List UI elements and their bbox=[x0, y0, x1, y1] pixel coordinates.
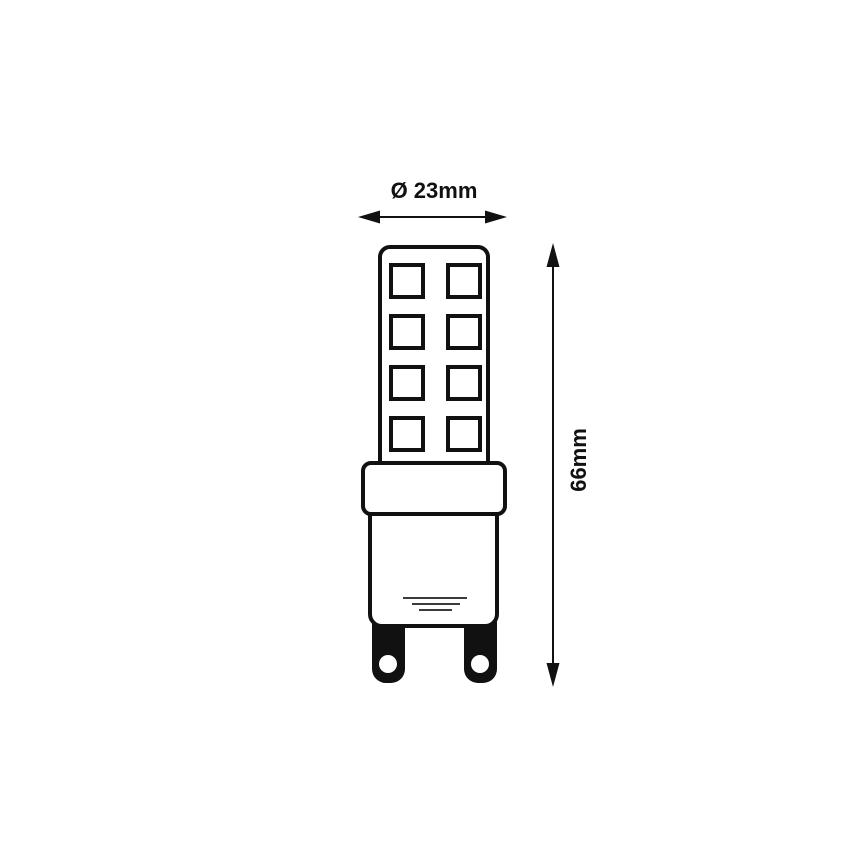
arrowhead-right-icon bbox=[485, 211, 507, 224]
bulb-body bbox=[378, 245, 490, 469]
pin-right bbox=[464, 620, 497, 683]
led-chip bbox=[446, 314, 482, 350]
pin-hole bbox=[471, 655, 489, 673]
led-chip bbox=[389, 416, 425, 452]
pin-hole bbox=[379, 655, 397, 673]
width-dimension-arrow bbox=[358, 209, 507, 225]
led-chip bbox=[389, 263, 425, 299]
width-dimension-label: Ø 23mm bbox=[354, 179, 514, 203]
bulb-collar bbox=[361, 461, 507, 516]
pin-left bbox=[372, 620, 405, 683]
led-chip bbox=[446, 416, 482, 452]
arrowhead-left-icon bbox=[358, 211, 380, 224]
led-chip bbox=[389, 365, 425, 401]
vent-line bbox=[403, 597, 467, 599]
technical-drawing-canvas: Ø 23mm 66mm bbox=[0, 0, 868, 868]
arrowhead-up-icon bbox=[547, 243, 560, 267]
height-dimension-label: 66mm bbox=[567, 420, 591, 500]
bulb-base bbox=[368, 512, 499, 628]
led-chip bbox=[389, 314, 425, 350]
height-dimension-arrow bbox=[545, 243, 561, 687]
vent-line bbox=[419, 609, 452, 611]
arrowhead-down-icon bbox=[547, 663, 560, 687]
vent-line bbox=[412, 603, 460, 605]
led-chip bbox=[446, 263, 482, 299]
led-chip bbox=[446, 365, 482, 401]
